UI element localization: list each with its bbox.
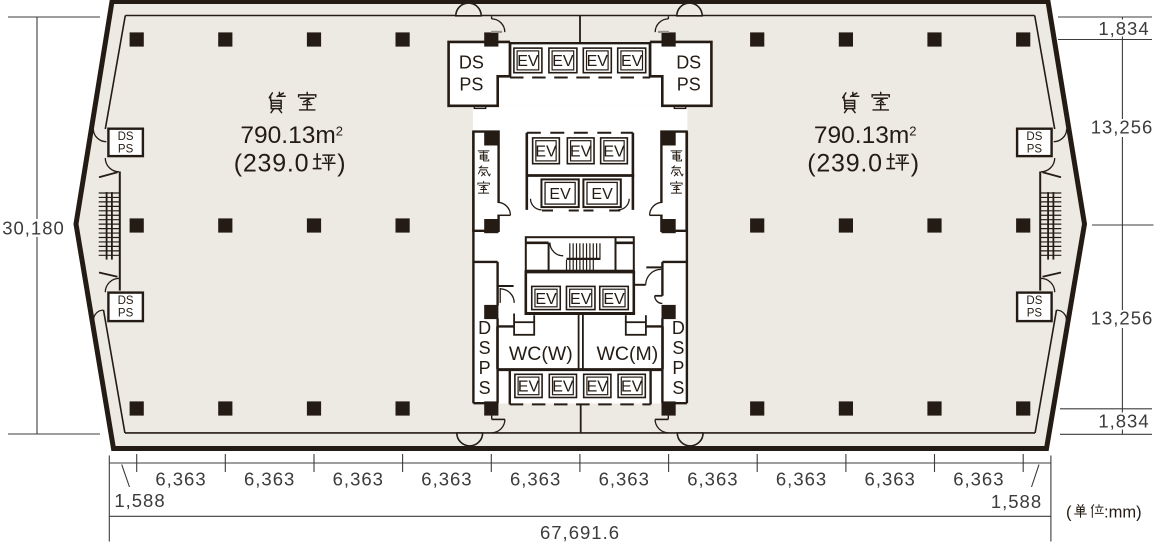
svg-text:(239.0: (239.0 xyxy=(807,149,883,177)
svg-text:PS: PS xyxy=(118,144,134,156)
svg-text:DS: DS xyxy=(676,53,701,73)
svg-text:1,834: 1,834 xyxy=(1098,18,1149,39)
svg-text:6,363: 6,363 xyxy=(776,469,827,490)
svg-text::mm): :mm) xyxy=(1104,504,1142,522)
svg-text:): ) xyxy=(337,149,345,177)
svg-text:EV: EV xyxy=(570,144,592,161)
svg-text:EV: EV xyxy=(621,379,643,396)
svg-text:PS: PS xyxy=(677,75,701,95)
svg-text:1,588: 1,588 xyxy=(114,490,165,511)
svg-text:EV: EV xyxy=(518,379,540,396)
svg-text:EV: EV xyxy=(535,144,557,161)
svg-text:6,363: 6,363 xyxy=(865,469,916,490)
svg-text:WC(M): WC(M) xyxy=(597,343,659,365)
svg-text:1,834: 1,834 xyxy=(1098,411,1149,432)
svg-text:6,363: 6,363 xyxy=(333,469,384,490)
svg-text:EV: EV xyxy=(570,291,592,308)
svg-text:D: D xyxy=(672,318,685,338)
svg-text:EV: EV xyxy=(517,53,539,70)
svg-text:EV: EV xyxy=(621,53,643,70)
svg-text:6,363: 6,363 xyxy=(244,469,295,490)
svg-text:EV: EV xyxy=(552,379,574,396)
svg-text:DS: DS xyxy=(459,53,484,73)
svg-text:EV: EV xyxy=(587,53,609,70)
svg-text:6,363: 6,363 xyxy=(155,469,206,490)
svg-text:S: S xyxy=(672,378,684,398)
svg-text:): ) xyxy=(911,149,919,177)
svg-text:S: S xyxy=(479,338,491,358)
svg-text:EV: EV xyxy=(549,186,571,203)
svg-text:DS: DS xyxy=(1026,295,1042,307)
svg-text:30,180: 30,180 xyxy=(2,218,65,239)
svg-text:EV: EV xyxy=(587,379,609,396)
svg-text:P: P xyxy=(672,358,684,378)
svg-text:6,363: 6,363 xyxy=(510,469,561,490)
svg-text:PS: PS xyxy=(118,308,134,320)
svg-text:EV: EV xyxy=(603,291,625,308)
svg-text:67,691.6: 67,691.6 xyxy=(540,522,620,542)
svg-text:6,363: 6,363 xyxy=(953,469,1004,490)
svg-text:DS: DS xyxy=(1026,131,1042,143)
svg-text:D: D xyxy=(478,318,491,338)
svg-text:(239.0: (239.0 xyxy=(234,149,310,177)
svg-text:790.13m2: 790.13m2 xyxy=(240,122,343,149)
svg-text:1,588: 1,588 xyxy=(991,491,1042,512)
svg-text:S: S xyxy=(479,378,491,398)
svg-text:6,363: 6,363 xyxy=(421,469,472,490)
svg-text:DS: DS xyxy=(118,295,134,307)
svg-text:6,363: 6,363 xyxy=(687,469,738,490)
svg-text:6,363: 6,363 xyxy=(599,469,650,490)
svg-text:EV: EV xyxy=(552,53,574,70)
svg-text:PS: PS xyxy=(459,75,483,95)
svg-text:P: P xyxy=(479,358,491,378)
svg-text:EV: EV xyxy=(591,186,613,203)
svg-text:WC(W): WC(W) xyxy=(509,343,573,365)
svg-text:13,256: 13,256 xyxy=(1091,117,1154,138)
svg-text:PS: PS xyxy=(1027,308,1043,320)
svg-text:790.13m2: 790.13m2 xyxy=(814,122,917,149)
svg-text:PS: PS xyxy=(1027,144,1043,156)
svg-text:EV: EV xyxy=(535,291,557,308)
svg-text:DS: DS xyxy=(118,131,134,143)
svg-text:13,256: 13,256 xyxy=(1091,308,1154,329)
svg-text:EV: EV xyxy=(603,144,625,161)
svg-text:S: S xyxy=(672,338,684,358)
svg-text:(: ( xyxy=(1066,504,1072,522)
